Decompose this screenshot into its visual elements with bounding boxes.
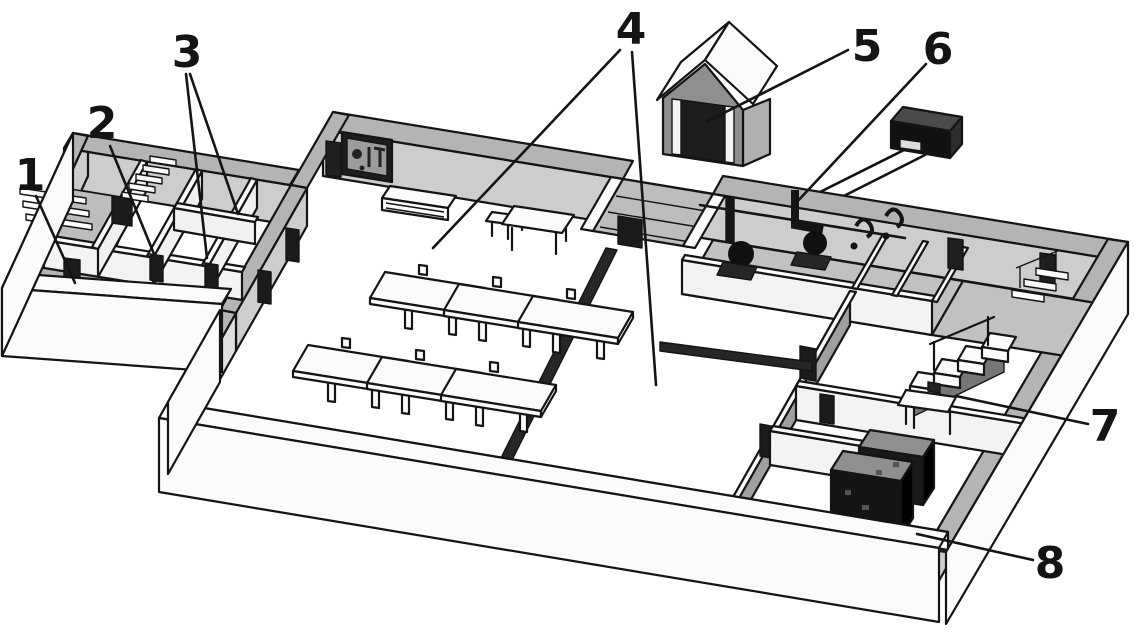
callout-3-label: 3 — [172, 27, 203, 78]
desk-equipment — [928, 382, 940, 393]
bunk — [441, 362, 556, 432]
callout-7-label: 7 — [1090, 401, 1121, 452]
stair-doorway — [112, 196, 132, 226]
machinery-door — [948, 238, 963, 270]
bunk — [518, 289, 633, 359]
callout-8-label: 8 — [1035, 538, 1066, 589]
callout-6-label: 6 — [923, 24, 954, 75]
callout-4-label: 4 — [616, 4, 647, 55]
room-door — [150, 254, 163, 282]
trench-doorway — [618, 216, 642, 248]
duct-cross-hall — [495, 248, 617, 472]
room-door — [820, 394, 834, 424]
room-door — [258, 270, 271, 304]
table — [502, 206, 574, 254]
board-symbol — [352, 149, 362, 159]
callout-5-label: 5 — [852, 21, 883, 72]
callout-2-label: 2 — [87, 98, 118, 149]
bunk-platforms — [293, 265, 633, 432]
notice-board — [342, 132, 392, 182]
room-door — [286, 228, 299, 262]
duct-along-wall — [660, 342, 812, 371]
shelter-cutaway-figure: 1 2 3 4 5 6 7 8 — [0, 0, 1135, 641]
diagram-canvas: 1 2 3 4 5 6 7 8 — [0, 0, 1135, 641]
callout-1-label: 1 — [15, 150, 46, 201]
back-wall-door — [326, 141, 341, 177]
